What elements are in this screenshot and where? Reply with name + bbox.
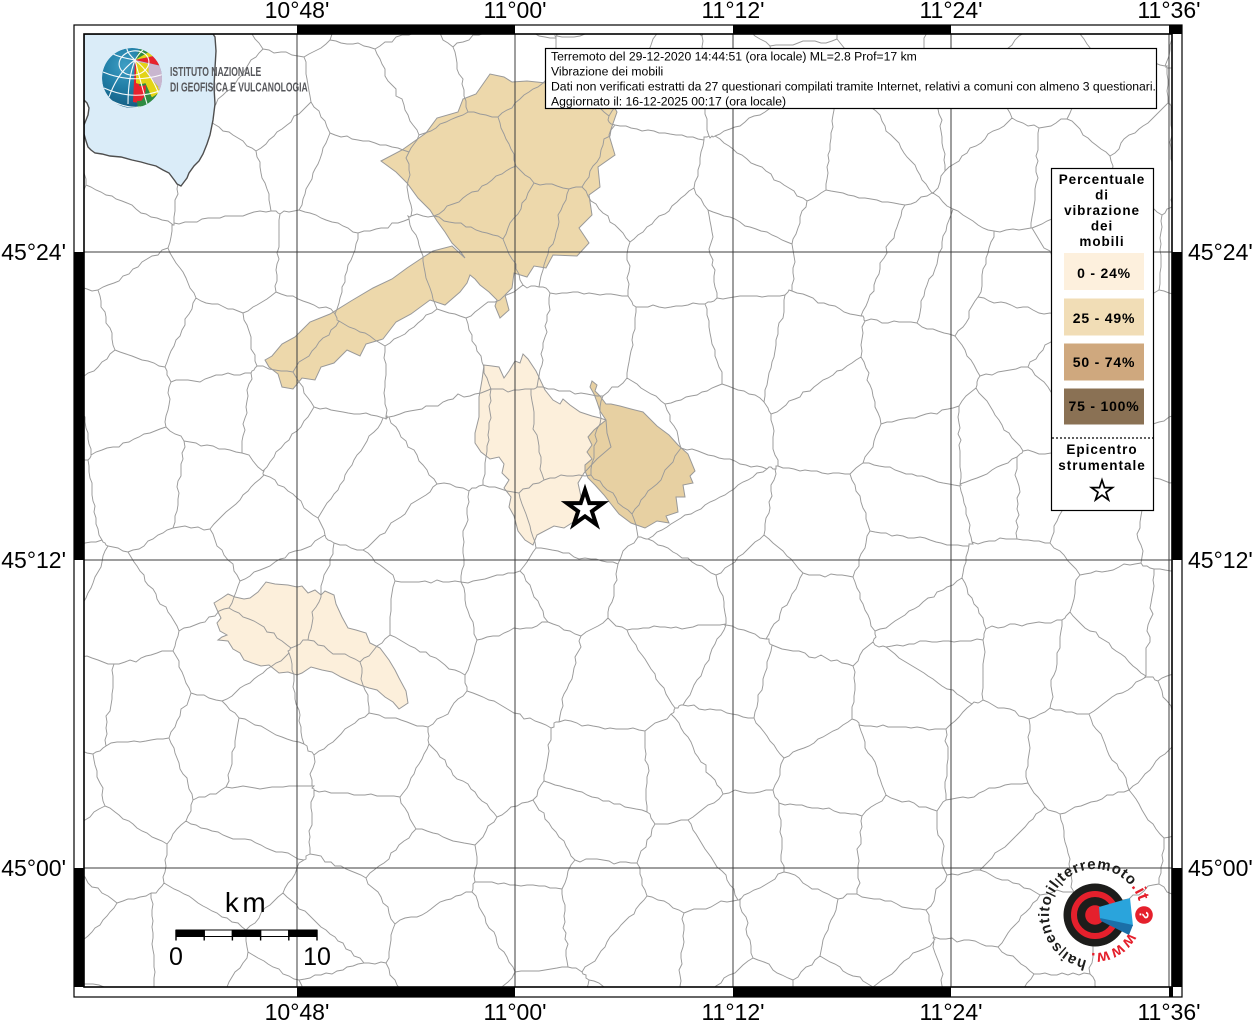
svg-text:50 - 74%: 50 - 74%	[1073, 354, 1135, 370]
svg-text:Terremoto del 29-12-2020 14:44: Terremoto del 29-12-2020 14:44:51 (ora l…	[551, 50, 917, 64]
svg-text:vibrazione: vibrazione	[1064, 203, 1140, 218]
svg-text:Percentuale: Percentuale	[1059, 172, 1145, 187]
svg-text:45°00': 45°00'	[1188, 855, 1253, 881]
svg-text:strumentale: strumentale	[1058, 458, 1146, 473]
svg-text:11°00': 11°00'	[483, 999, 546, 1024]
svg-text:0 - 24%: 0 - 24%	[1077, 265, 1131, 281]
svg-text:11°36': 11°36'	[1137, 999, 1200, 1024]
svg-text:11°24': 11°24'	[919, 0, 982, 23]
svg-text:Aggiornato il: 16-12-2025 00:1: Aggiornato il: 16-12-2025 00:17 (ora loc…	[551, 95, 786, 109]
svg-text:DI GEOFISICA E VULCANOLOGIA: DI GEOFISICA E VULCANOLOGIA	[170, 81, 308, 95]
svg-text:0: 0	[169, 943, 183, 971]
svg-text:11°00': 11°00'	[483, 0, 546, 23]
svg-text:ISTITUTO NAZIONALE: ISTITUTO NAZIONALE	[170, 65, 261, 79]
svg-text:Vibrazione dei mobili: Vibrazione dei mobili	[551, 65, 663, 79]
svg-text:45°24': 45°24'	[1188, 239, 1253, 265]
svg-text:45°12': 45°12'	[1188, 547, 1253, 573]
svg-text:km: km	[225, 887, 269, 918]
svg-text:75 - 100%: 75 - 100%	[1068, 398, 1139, 414]
svg-text:Epicentro: Epicentro	[1066, 442, 1137, 457]
svg-text:?: ?	[1136, 910, 1152, 919]
svg-text:10°48': 10°48'	[265, 999, 330, 1024]
svg-text:11°12': 11°12'	[701, 999, 764, 1024]
svg-text:11°36': 11°36'	[1137, 0, 1200, 23]
svg-text:25 - 49%: 25 - 49%	[1073, 310, 1135, 326]
svg-text:45°00': 45°00'	[1, 855, 66, 881]
svg-text:45°24': 45°24'	[1, 239, 66, 265]
svg-text:45°12': 45°12'	[1, 547, 66, 573]
svg-text:mobili: mobili	[1079, 234, 1124, 249]
svg-text:Dati non verificati estratti d: Dati non verificati estratti da 27 quest…	[551, 80, 1156, 94]
svg-text:11°24': 11°24'	[919, 999, 982, 1024]
svg-text:di: di	[1095, 188, 1109, 203]
svg-text:10: 10	[303, 943, 331, 971]
svg-text:dei: dei	[1091, 219, 1113, 234]
svg-text:10°48': 10°48'	[265, 0, 330, 23]
svg-text:11°12': 11°12'	[701, 0, 764, 23]
